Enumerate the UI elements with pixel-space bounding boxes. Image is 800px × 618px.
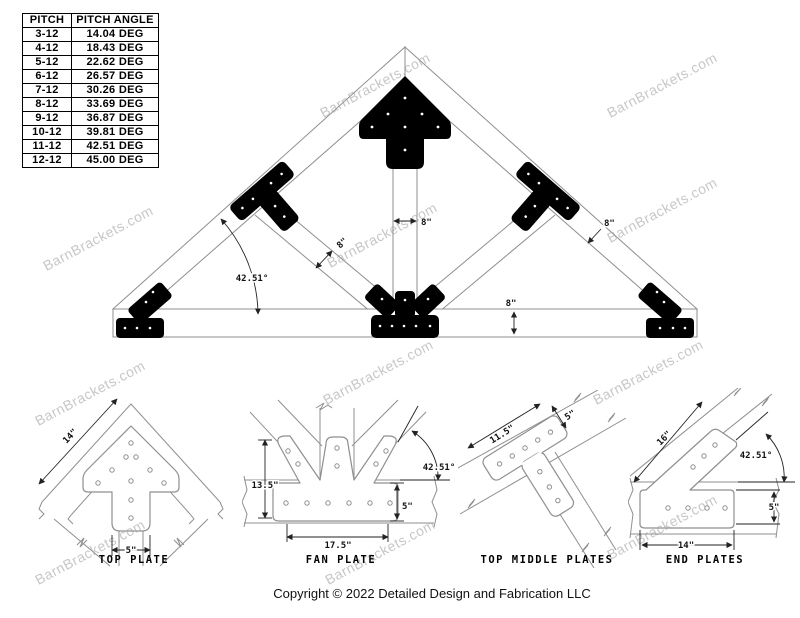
table-header-row: PITCH PITCH ANGLE xyxy=(23,14,159,28)
table-row: 5-1222.62 DEG xyxy=(23,56,159,70)
copyright-text: Copyright © 2022 Detailed Design and Fab… xyxy=(0,586,800,601)
fan-plate-angle-dim: 42.51° xyxy=(423,463,456,473)
pitch-cell: 3-12 xyxy=(23,28,72,42)
rafter-width-label: 8" xyxy=(604,219,615,229)
angle-cell: 30.26 DEG xyxy=(72,84,159,98)
top-plate-detail: 14" 5" xyxy=(38,388,233,568)
angle-cell: 22.62 DEG xyxy=(72,56,159,70)
end-plates-base-height-dim: 5" xyxy=(769,503,780,513)
pitch-cell: 12-12 xyxy=(23,154,72,168)
top-middle-plates-caption: TOP MIDDLE PLATES xyxy=(467,554,627,566)
fan-plate-width-dim: 17.5" xyxy=(324,541,351,551)
top-middle-width-dim: 5" xyxy=(563,409,577,423)
angle-cell: 18.43 DEG xyxy=(72,42,159,56)
table-row: 12-1245.00 DEG xyxy=(23,154,159,168)
pitch-angle-label: 42.51° xyxy=(236,274,269,284)
pitch-angle-table: PITCH PITCH ANGLE 3-1214.04 DEG 4-1218.4… xyxy=(22,13,159,168)
angle-cell: 14.04 DEG xyxy=(72,28,159,42)
fan-plate-height-dim: 13.5" xyxy=(251,481,278,491)
fan-plate-base-height-dim: 5" xyxy=(402,502,413,512)
table-row: 4-1218.43 DEG xyxy=(23,42,159,56)
fan-plate-caption: FAN PLATE xyxy=(271,554,411,566)
end-plates-base-width-dim: 14" xyxy=(678,541,694,551)
top-middle-bracket-left xyxy=(228,160,319,249)
angle-cell: 42.51 DEG xyxy=(72,140,159,154)
pitch-cell: 11-12 xyxy=(23,140,72,154)
chord-height-label: 8" xyxy=(506,299,517,309)
table-row: 8-1233.69 DEG xyxy=(23,98,159,112)
header-pitch-angle: PITCH ANGLE xyxy=(72,14,159,28)
angle-cell: 33.69 DEG xyxy=(72,98,159,112)
table-row: 3-1214.04 DEG xyxy=(23,28,159,42)
strut-width-label: 8" xyxy=(335,236,350,251)
angle-cell: 26.57 DEG xyxy=(72,70,159,84)
king-post-width-label: 8" xyxy=(421,218,432,228)
table-row: 11-1242.51 DEG xyxy=(23,140,159,154)
drawing-page: BarnBrackets.com BarnBrackets.com BarnBr… xyxy=(0,0,800,618)
top-middle-plates-detail: 11.5" 5" xyxy=(458,390,630,570)
top-plate-caption: TOP PLATE xyxy=(64,554,204,566)
table-row: 6-1226.57 DEG xyxy=(23,70,159,84)
top-plate-edge-dim: 14" xyxy=(61,427,79,446)
pitch-cell: 8-12 xyxy=(23,98,72,112)
angle-cell: 36.87 DEG xyxy=(72,112,159,126)
end-plates-caption: END PLATES xyxy=(635,554,775,566)
table-row: 10-1239.81 DEG xyxy=(23,126,159,140)
pitch-cell: 6-12 xyxy=(23,70,72,84)
header-pitch: PITCH xyxy=(23,14,72,28)
table-row: 9-1236.87 DEG xyxy=(23,112,159,126)
pitch-cell: 10-12 xyxy=(23,126,72,140)
end-plates-detail: 16" 42.51° 5" 14" xyxy=(628,388,800,558)
angle-cell: 45.00 DEG xyxy=(72,154,159,168)
pitch-cell: 5-12 xyxy=(23,56,72,70)
top-middle-bracket-right xyxy=(491,160,582,249)
pitch-cell: 7-12 xyxy=(23,84,72,98)
angle-cell: 39.81 DEG xyxy=(72,126,159,140)
pitch-cell: 4-12 xyxy=(23,42,72,56)
end-plates-angle-dim: 42.51° xyxy=(740,451,773,461)
fan-plate-detail: 13.5" 17.5" 5" 42.51° xyxy=(242,398,457,558)
end-plates-arm-dim: 16" xyxy=(655,429,674,448)
pitch-cell: 9-12 xyxy=(23,112,72,126)
table-row: 7-1230.26 DEG xyxy=(23,84,159,98)
